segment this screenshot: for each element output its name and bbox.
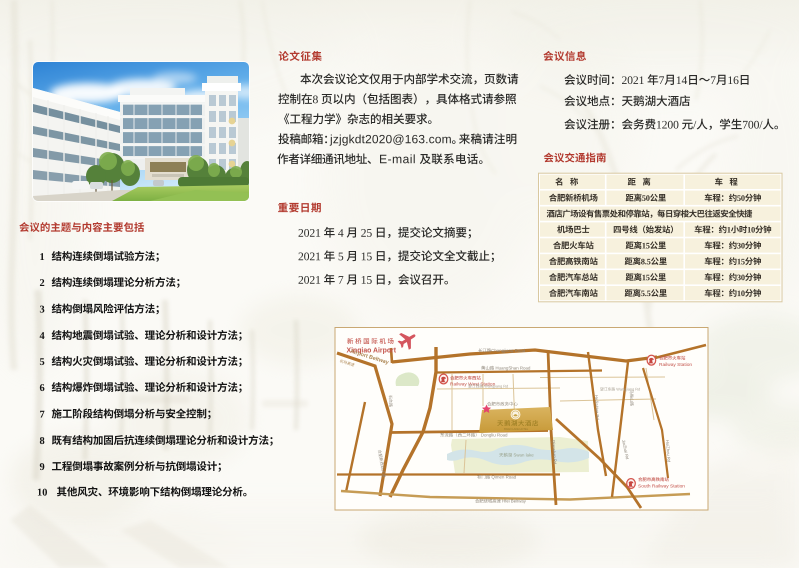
svg-text:South Railway Station: South Railway Station xyxy=(638,484,685,490)
svg-text:Railway Station: Railway Station xyxy=(659,362,692,368)
svg-text:SWAN LAKE HOTEL: SWAN LAKE HOTEL xyxy=(504,427,529,431)
